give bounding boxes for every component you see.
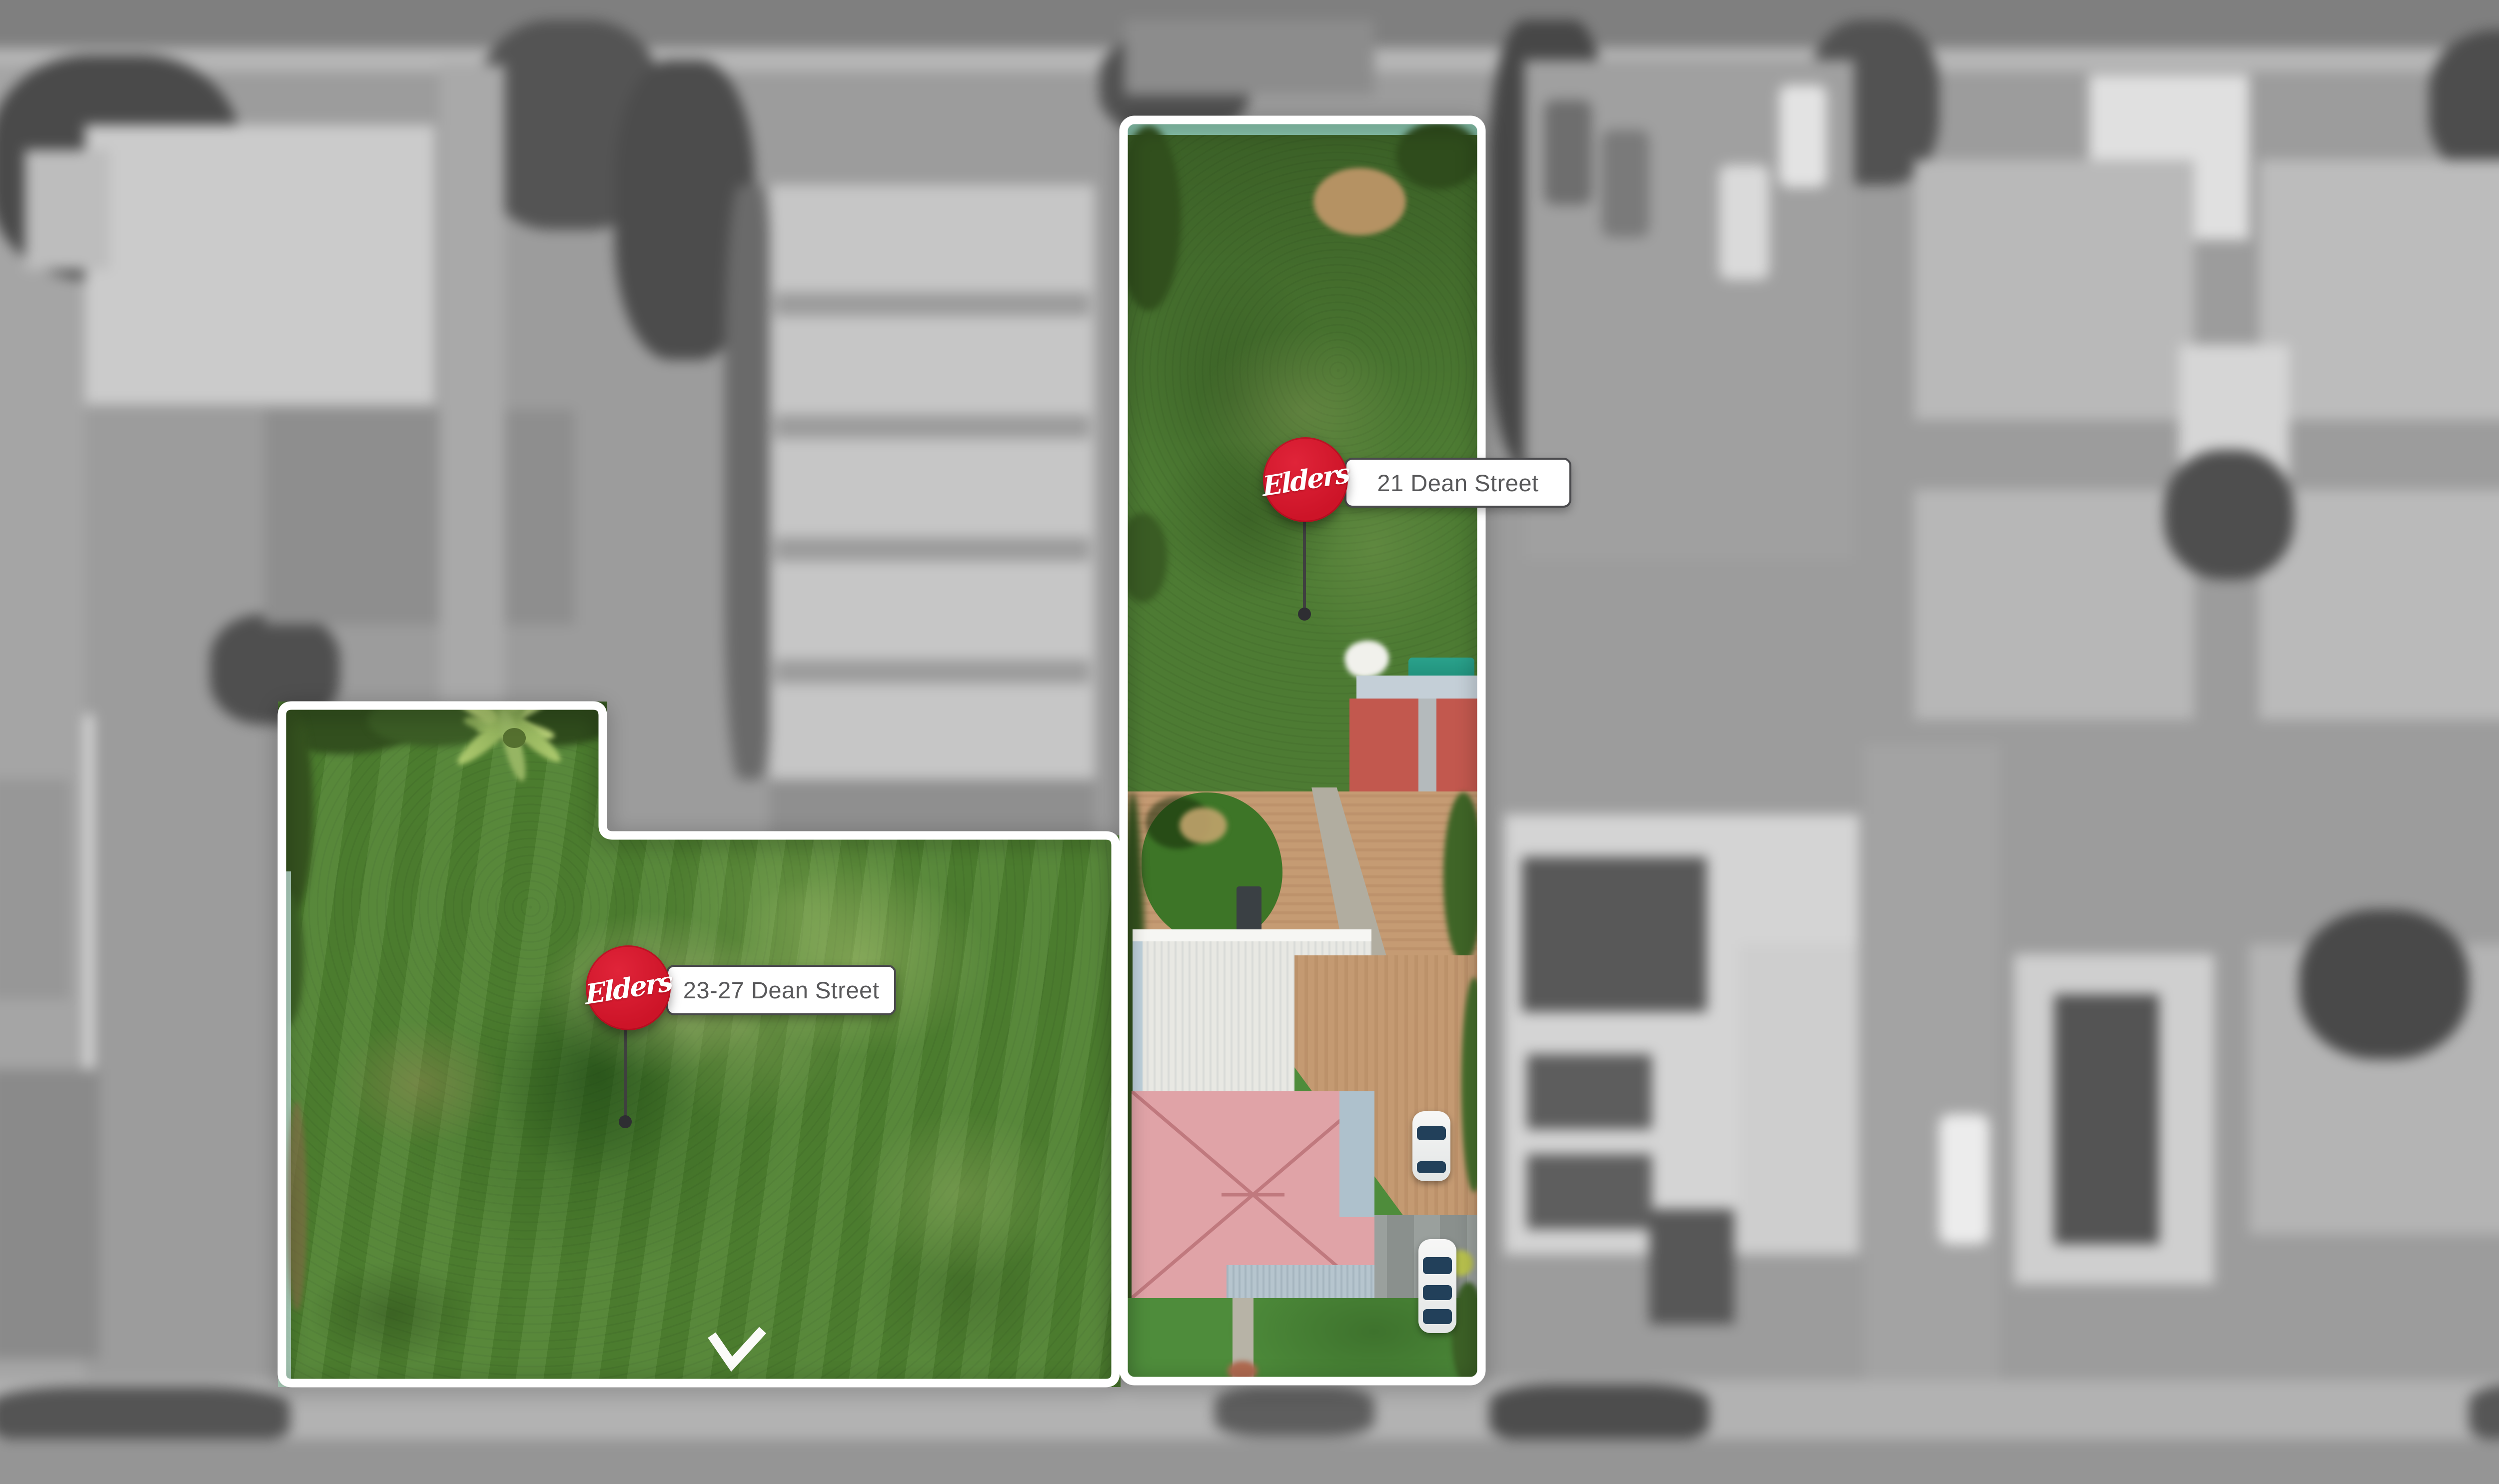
marker-dot (619, 1115, 632, 1128)
boundary-23-27-dean (282, 706, 1116, 1383)
marker-label-21-dean-street[interactable]: 21 Dean Street (1344, 458, 1571, 508)
boundary-21-dean (1124, 120, 1481, 1381)
marker-label-23-27-dean-street[interactable]: 23-27 Dean Street (666, 965, 896, 1015)
marker-stem (624, 1029, 627, 1117)
elders-logo-badge[interactable]: Elders (586, 945, 671, 1030)
elders-logo: Elders (584, 965, 672, 1011)
marker-stem (1303, 521, 1306, 611)
aerial-photo-canvas: 21 Dean Street Elders 23-27 Dean Street … (0, 0, 2499, 1484)
elders-logo: Elders (1261, 457, 1349, 503)
elders-logo-badge[interactable]: Elders (1263, 437, 1348, 522)
parcel-boundaries (0, 0, 2499, 1484)
marker-dot (1298, 608, 1311, 621)
